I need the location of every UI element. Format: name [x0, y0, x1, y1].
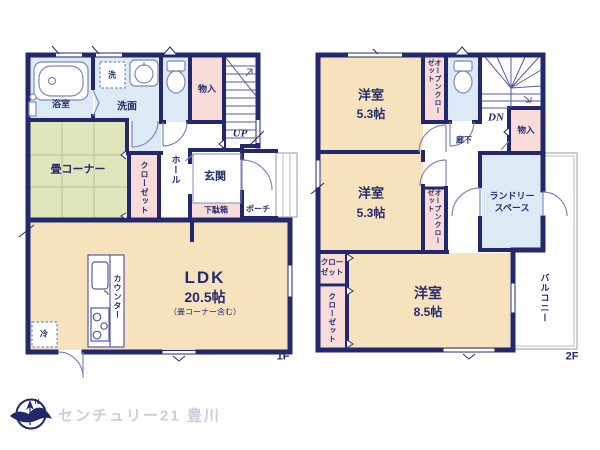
floorplan-canvas: 浴室 洗 洗面 物入 UP 畳コーナー クローゼット ホール 玄関 下駄箱 ポー…: [0, 0, 600, 450]
bath-label: 浴室: [52, 99, 70, 109]
storage2-label: 物入: [517, 126, 534, 136]
bedroom2-size-label: 5.3帖: [357, 207, 386, 221]
closet-small-label-1: クロー: [321, 259, 344, 268]
balcony-label: バルコニー: [540, 273, 549, 323]
compass-logo: [10, 400, 52, 429]
closet-small-label-2: ゼット: [321, 269, 344, 278]
laundry-door: [452, 188, 480, 216]
toilet2-tank: [454, 61, 472, 71]
porch-label: ポーチ: [246, 204, 270, 213]
toilet1-bowl: [167, 71, 185, 93]
compass-n-label: N: [34, 399, 39, 407]
bedroom1-door: [419, 125, 446, 152]
ldk-size-label: 20.5帖: [184, 289, 225, 305]
bedroom3-size-label: 8.5帖: [414, 306, 443, 320]
bedroom1-floor: [320, 57, 423, 152]
entrance-door: [242, 160, 272, 190]
laundry-label-2: スペース: [495, 203, 530, 213]
stairs-up-label: UP: [233, 128, 248, 141]
bedroom2-label: 洋室: [358, 187, 384, 202]
counter-label: カウンター: [113, 275, 121, 320]
balcony-door: [543, 192, 567, 216]
kitchen-back-door: [58, 352, 83, 378]
stairs-2f: [482, 57, 541, 108]
shoebox-label: 下駄箱: [204, 205, 228, 214]
bathtub-inner: [39, 66, 83, 96]
brand-name: センチュリー21 豊川: [58, 405, 221, 426]
storage1-label: 物入: [198, 84, 216, 94]
washroom-vestibule-floor: [131, 120, 161, 153]
floor2-label: 2F: [566, 351, 579, 364]
tatami-label: 畳コーナー: [51, 164, 106, 177]
corridor-label: 廊下: [456, 135, 472, 144]
open-closet2-label: オープンクローゼット: [427, 189, 441, 251]
laundry-label-1: ランドリー: [489, 191, 534, 201]
vent-triangle-2f: [455, 47, 469, 55]
wc1-door: [163, 122, 187, 146]
bedroom1-label: 洋室: [358, 89, 384, 104]
stairs-1f: [226, 58, 256, 138]
ldk-label: LDK: [185, 268, 226, 288]
entrance-label: 玄関: [204, 171, 226, 184]
porch-steps: [276, 153, 297, 217]
open-closet1-label: オープンクローゼット: [427, 59, 441, 121]
bath-counter: [29, 102, 36, 116]
ldk-floor: [30, 222, 288, 350]
closet-tall-label: クローゼット: [328, 293, 336, 344]
floor1-label: 1F: [277, 351, 290, 364]
bedroom3-label: 洋室: [414, 285, 442, 301]
washroom-label: 洗面: [117, 101, 137, 113]
toilet1-tank: [167, 61, 185, 71]
stairs-down-label: DN: [488, 112, 504, 125]
floorplan-drawing: [0, 0, 600, 450]
bedroom2-floor: [320, 154, 423, 251]
bedroom2-door: [420, 160, 446, 186]
toilet2-bowl: [454, 71, 472, 93]
closet1-label: クローゼット: [140, 161, 148, 215]
kitchen-sink-icon: [92, 262, 108, 289]
hall-label: ホール: [171, 155, 180, 185]
fridge-label: 冷: [40, 329, 48, 338]
bedroom1-size-label: 5.3帖: [357, 108, 386, 122]
vent-triangle-1f: [163, 47, 177, 55]
washer-label: 洗: [108, 70, 116, 79]
ldk-note-label: （畳コーナー含む）: [169, 307, 241, 316]
